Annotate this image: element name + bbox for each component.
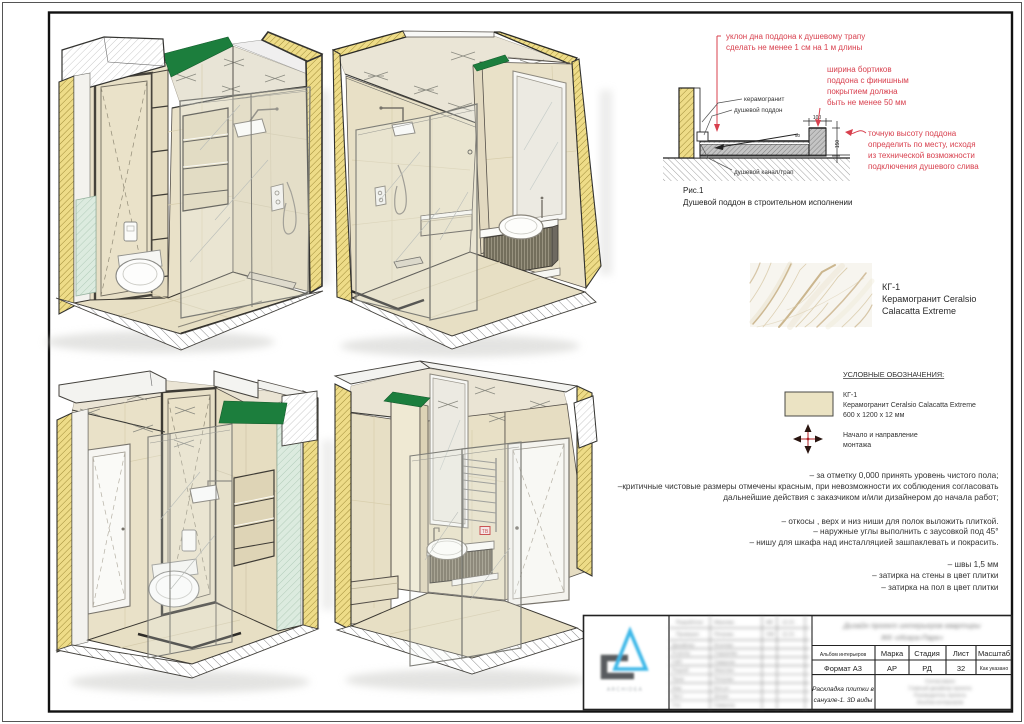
- svg-text:душевой поддон: душевой поддон: [734, 106, 783, 114]
- svg-text:Пров: Пров: [672, 677, 684, 683]
- svg-text:Разраб: Разраб: [672, 668, 689, 674]
- svg-text:Главный дизайнер проекта: Главный дизайнер проекта: [909, 685, 972, 692]
- svg-text:КГ-1: КГ-1: [882, 282, 900, 292]
- svg-text:Изм: Изм: [672, 686, 682, 692]
- svg-text:ARCHIDEA: ARCHIDEA: [607, 687, 643, 693]
- svg-text:покрытием должна: покрытием должна: [827, 87, 898, 96]
- svg-text:50: 50: [795, 133, 801, 138]
- svg-text:из технической возможности: из технической возможности: [868, 151, 975, 160]
- svg-text:Марка: Марка: [881, 649, 904, 658]
- svg-text:Иванова: Иванова: [714, 620, 734, 626]
- svg-text:Петрова: Петрова: [714, 632, 734, 638]
- svg-text:Н.контр: Н.контр: [672, 651, 690, 657]
- svg-text:Разработал: Разработал: [676, 620, 703, 626]
- svg-text:32: 32: [957, 664, 965, 673]
- svg-text:Альбом интерьеров: Альбом интерьеров: [917, 700, 964, 706]
- svg-text:Альбом интерьеров: Альбом интерьеров: [820, 652, 867, 658]
- svg-text:уклон дна поддона к душевому т: уклон дна поддона к душевому трапу: [726, 32, 865, 41]
- svg-text:Рис.1: Рис.1: [683, 186, 704, 195]
- svg-text:душевой канал/трап: душевой канал/трап: [734, 168, 794, 176]
- svg-text:– наружные углы выполнить с з: – наружные углы выполнить с заусовкой по…: [813, 527, 998, 536]
- svg-text:Керамогранит Ceralsio Calacatt: Керамогранит Ceralsio Calacatta Extreme: [843, 402, 976, 409]
- svg-text:Кол.уч: Кол.уч: [714, 686, 729, 692]
- svg-text:РД: РД: [922, 664, 932, 673]
- svg-text:Смирнов: Смирнов: [714, 660, 735, 666]
- svg-text:Лист: Лист: [953, 649, 970, 658]
- svg-text:600 х 1200 х 12 мм: 600 х 1200 х 12 мм: [843, 412, 905, 419]
- svg-text:Масштаб: Масштаб: [978, 649, 1010, 658]
- svg-text:– затирка на стены в цвет пли: – затирка на стены в цвет плитки: [872, 571, 998, 580]
- svg-text:Дизайн проект интерьеров кварт: Дизайн проект интерьеров квартиры: [842, 621, 981, 630]
- svg-text:– откосы , верх и низ ниши дл: – откосы , верх и низ ниши для полок выл…: [782, 517, 999, 526]
- svg-text:дальнейшие действия с заказчик: дальнейшие действия с заказчиком и/или д…: [723, 493, 998, 502]
- svg-text:Формат А3: Формат А3: [824, 664, 862, 673]
- svg-text:12.21: 12.21: [782, 620, 795, 626]
- svg-text:Душевой поддон в строительном: Душевой поддон в строительном исполнении: [683, 198, 852, 207]
- svg-text:Руководитель проекта: Руководитель проекта: [914, 693, 966, 699]
- svg-text:Проверил: Проверил: [676, 632, 699, 638]
- svg-text:Иванова: Иванова: [714, 668, 734, 674]
- svg-text:ГИП: ГИП: [672, 660, 682, 666]
- svg-text:Согласовано: Согласовано: [925, 679, 955, 685]
- svg-text:Раскладка плитки в: Раскладка плитки в: [812, 685, 874, 693]
- svg-text:АВ: АВ: [766, 620, 773, 626]
- svg-text:Утв: Утв: [672, 703, 680, 709]
- svg-text:–критичные чистовые размеры от: –критичные чистовые размеры отмечены кра…: [618, 482, 999, 491]
- svg-text:керамогранит: керамогранит: [744, 96, 784, 103]
- svg-text:ОМ: ОМ: [766, 632, 774, 638]
- svg-text:Керамогранит Ceralsio: Керамогранит Ceralsio: [882, 294, 976, 304]
- svg-text:12.21: 12.21: [782, 632, 795, 638]
- svg-text:КГ-1: КГ-1: [843, 392, 857, 399]
- svg-text:ЖК «Искра-Парк»: ЖК «Искра-Парк»: [880, 633, 944, 642]
- svg-text:ширина бортиков: ширина бортиков: [827, 65, 892, 74]
- svg-text:Докум: Докум: [714, 694, 729, 700]
- svg-text:точную высоту поддона: точную высоту поддона: [868, 129, 957, 138]
- svg-text:санузле-1. 3D виды: санузле-1. 3D виды: [814, 696, 873, 704]
- svg-text:быть не менее 50 мм: быть не менее 50 мм: [827, 98, 906, 107]
- svg-text:150: 150: [835, 140, 841, 149]
- svg-text:Стадия: Стадия: [914, 649, 940, 658]
- svg-text:Дизайнер: Дизайнер: [672, 642, 695, 649]
- svg-text:определить по месту, исходя: определить по месту, исходя: [868, 140, 976, 149]
- svg-text:– нишу для шкафа над инсталля: – нишу для шкафа над инсталляцией зашпак…: [749, 538, 998, 547]
- svg-text:Лист: Лист: [672, 694, 684, 700]
- svg-text:Петрова: Петрова: [714, 677, 734, 683]
- svg-text:Смирнов: Смирнов: [714, 703, 735, 709]
- svg-text:– швы 1,5 мм: – швы 1,5 мм: [948, 560, 999, 569]
- svg-text:Козлова: Козлова: [714, 643, 733, 649]
- svg-text:УСЛОВНЫЕ ОБОЗНАЧЕНИЯ:: УСЛОВНЫЕ ОБОЗНАЧЕНИЯ:: [843, 370, 944, 379]
- svg-text:– затирка на пол в цвет плитк: – затирка на пол в цвет плитки: [881, 583, 998, 592]
- svg-text:сделать не менее 1 см на 1 м д: сделать не менее 1 см на 1 м длины: [726, 43, 863, 52]
- svg-text:подключения душевого слива: подключения душевого слива: [868, 162, 979, 171]
- svg-text:поддона с финишным: поддона с финишным: [827, 76, 909, 85]
- svg-text:Сидорова: Сидорова: [714, 651, 737, 657]
- svg-text:Как указано: Как указано: [980, 666, 1009, 672]
- svg-text:АР: АР: [887, 664, 897, 673]
- svg-text:монтажа: монтажа: [843, 442, 871, 449]
- svg-text:Начало и направление: Начало и направление: [843, 432, 918, 439]
- svg-text:Calacatta Extreme: Calacatta Extreme: [882, 306, 956, 316]
- svg-text:– за отметку 0,000 принять ур: – за отметку 0,000 принять уровень чисто…: [810, 471, 999, 480]
